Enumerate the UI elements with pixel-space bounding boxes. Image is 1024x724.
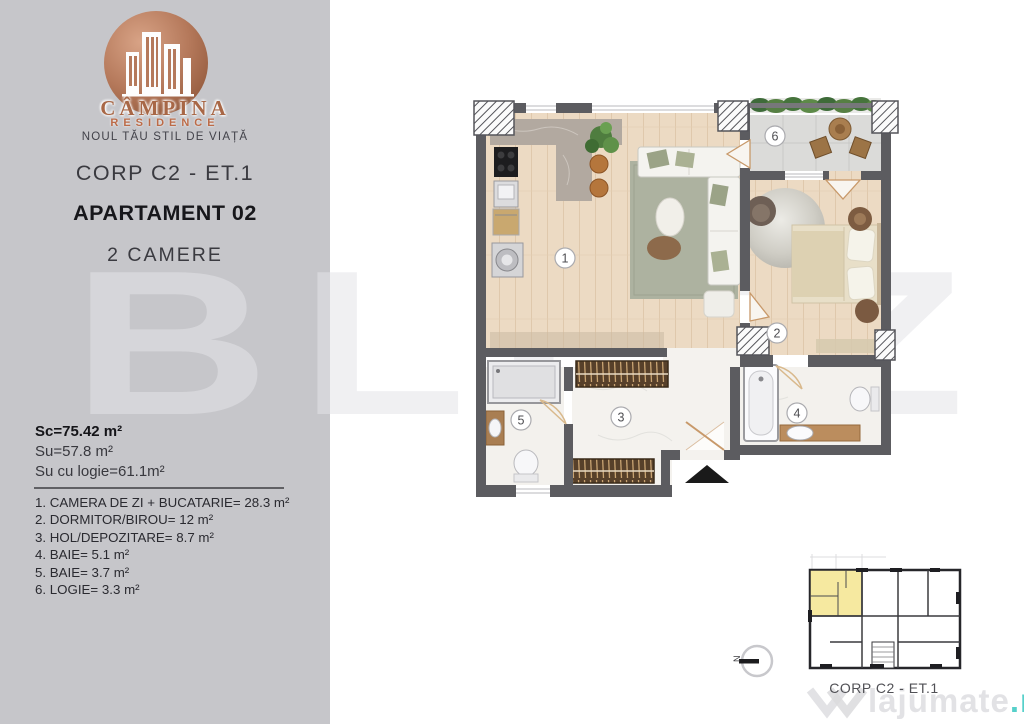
room-list-item: 1. CAMERA DE ZI + BUCATARIE= 28.3 m² xyxy=(35,494,289,511)
kitchen-island xyxy=(556,145,592,201)
apartment-title: APARTAMENT 02 xyxy=(0,201,330,226)
ottoman xyxy=(855,299,879,323)
bathtub xyxy=(744,365,778,441)
area-summary: Sc=75.42 m² Su=57.8 m² Su cu logie=61.1m… xyxy=(35,422,165,482)
divider-line xyxy=(34,487,284,489)
sideboard xyxy=(490,332,664,348)
room-5-label: 5 xyxy=(518,414,525,428)
corp-title: CORP C2 - ET.1 xyxy=(0,161,330,186)
area-usable-loggia: Su cu logie=61.1m² xyxy=(35,462,165,482)
north-label: N xyxy=(732,656,742,663)
rooms-subtitle: 2 CAMERE xyxy=(0,244,330,267)
coffee-table-low xyxy=(647,236,681,260)
room-list-item: 5. BAIE= 3.7 m² xyxy=(35,564,289,581)
shower xyxy=(488,361,560,403)
room-list-item: 3. HOL/DEPOZITARE= 8.7 m² xyxy=(35,529,289,546)
coffee-table xyxy=(656,198,684,236)
highlighted-apartment xyxy=(810,570,862,616)
bar-stool xyxy=(590,155,608,173)
cooktop xyxy=(494,147,518,177)
mini-plan-label: CORP C2 - ET.1 xyxy=(790,680,978,696)
oven xyxy=(493,209,519,235)
room-list: 1. CAMERA DE ZI + BUCATARIE= 28.3 m² 2. … xyxy=(35,494,289,598)
bar-stool xyxy=(590,179,608,197)
room-list-item: 4. BAIE= 5.1 m² xyxy=(35,546,289,563)
mini-floor-plan xyxy=(790,552,978,678)
north-indicator-icon: N xyxy=(730,640,780,684)
bed xyxy=(792,223,882,305)
floor-plan: 1 2 3 4 5 6 xyxy=(468,95,908,507)
brand-subtitle: RESIDENCE xyxy=(0,117,330,129)
room-6-label: 6 xyxy=(772,130,779,144)
brand-tagline: NOUL TĂU STIL DE VIAȚĂ xyxy=(0,131,330,143)
area-built: Sc=75.42 m² xyxy=(35,422,165,442)
bath4-toilet xyxy=(850,387,870,411)
site-tld: .ro xyxy=(1010,682,1024,719)
pouf xyxy=(704,291,734,317)
room-3-label: 3 xyxy=(618,411,625,425)
listing-floorplan-page: BLITZ CÂMPINA RESIDENCE xyxy=(0,0,1024,724)
room-list-item: 2. DORMITOR/BIROU= 12 m² xyxy=(35,511,289,528)
bed-bench xyxy=(816,339,882,353)
room-list-item: 6. LOGIE= 3.3 m² xyxy=(35,581,289,598)
room-1-label: 1 xyxy=(562,252,569,266)
room-2-label: 2 xyxy=(774,327,781,341)
room-4-label: 4 xyxy=(794,407,801,421)
bath5-toilet xyxy=(514,450,538,476)
area-usable: Su=57.8 m² xyxy=(35,442,165,462)
